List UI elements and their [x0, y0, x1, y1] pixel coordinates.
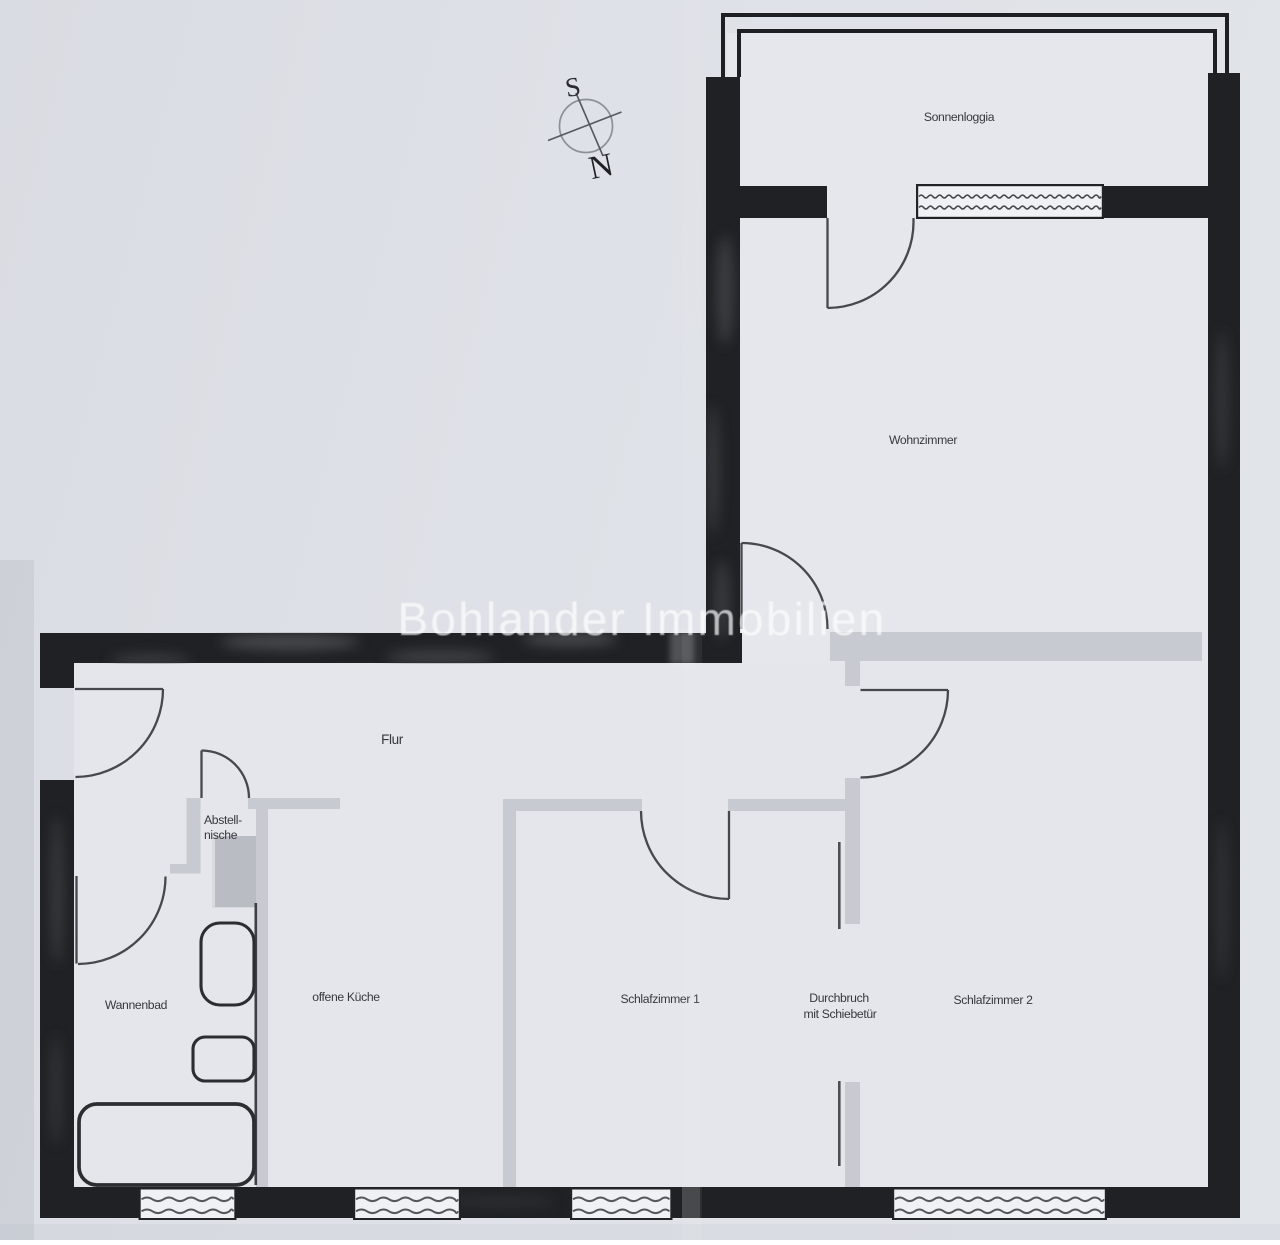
- svg-text:Schlafzimmer 2: Schlafzimmer 2: [953, 993, 1033, 1007]
- svg-text:Wannenbad: Wannenbad: [105, 998, 167, 1012]
- svg-text:nische: nische: [204, 828, 238, 842]
- svg-text:Flur: Flur: [381, 732, 404, 747]
- svg-text:Durchbruch: Durchbruch: [809, 991, 869, 1005]
- svg-text:Wohnzimmer: Wohnzimmer: [889, 433, 957, 447]
- svg-text:Abstell-: Abstell-: [204, 813, 242, 827]
- svg-text:Bohlander Immobilien: Bohlander Immobilien: [398, 593, 887, 645]
- svg-text:mit Schiebetür: mit Schiebetür: [804, 1007, 877, 1021]
- svg-text:offene Küche: offene Küche: [312, 990, 380, 1004]
- svg-text:Sonnenloggia: Sonnenloggia: [924, 110, 995, 124]
